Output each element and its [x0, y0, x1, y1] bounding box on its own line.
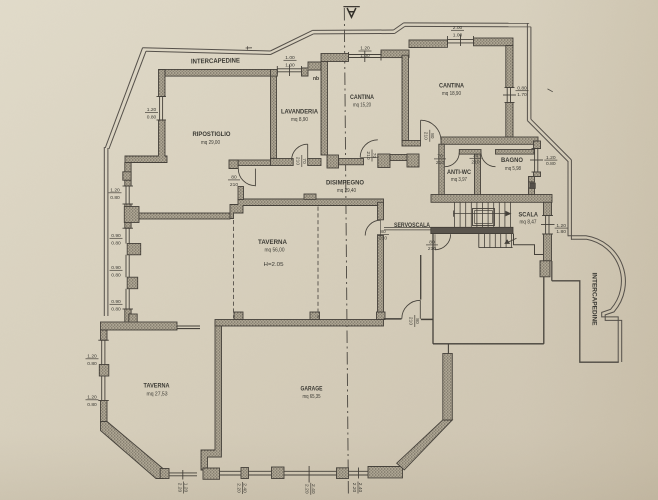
svg-text:mq 8,47: mq 8,47 [520, 220, 537, 226]
svg-text:CANTINA: CANTINA [350, 94, 374, 101]
svg-text:210: 210 [423, 132, 429, 140]
svg-text:ANTI-WC: ANTI-WC [447, 169, 471, 176]
svg-text:BAGNO: BAGNO [501, 157, 523, 164]
svg-text:1.70: 1.70 [517, 92, 527, 98]
svg-text:mq 29,00: mq 29,00 [201, 140, 220, 146]
svg-text:CANTINA: CANTINA [439, 83, 464, 90]
svg-text:DISIMPEGNO: DISIMPEGNO [326, 180, 364, 187]
svg-text:0.80: 0.80 [87, 361, 97, 367]
svg-text:mq 3,97: mq 3,97 [451, 177, 467, 183]
svg-text:1.00: 1.00 [285, 62, 295, 68]
svg-text:mq 27,53: mq 27,53 [147, 392, 168, 398]
svg-text:210: 210 [471, 159, 479, 165]
svg-text:1.00: 1.00 [453, 32, 463, 38]
svg-text:mq 56,00: mq 56,00 [265, 248, 285, 254]
svg-text:210: 210 [365, 151, 371, 159]
svg-text:mq 15,20: mq 15,20 [353, 103, 371, 109]
svg-text:0.80: 0.80 [147, 115, 157, 121]
svg-text:0.80: 0.80 [110, 195, 120, 201]
svg-text:0.80: 0.80 [111, 240, 121, 246]
svg-text:LAVANDERIA: LAVANDERIA [281, 109, 318, 116]
svg-text:SERVOSCALA: SERVOSCALA [394, 222, 430, 229]
svg-text:2.20: 2.20 [351, 483, 357, 493]
svg-text:210: 210 [436, 160, 444, 166]
svg-text:GARAGE: GARAGE [301, 386, 323, 393]
svg-text:210: 210 [379, 236, 387, 242]
svg-text:210: 210 [295, 157, 301, 165]
svg-text:TAVERNA: TAVERNA [258, 239, 287, 246]
svg-text:nb: nb [313, 76, 319, 82]
svg-text:2.20: 2.20 [176, 483, 182, 493]
svg-text:mq 65,35: mq 65,35 [303, 394, 321, 400]
svg-text:RIPOSTIGLIO: RIPOSTIGLIO [193, 131, 231, 138]
svg-text:INTERCAPEDINE: INTERCAPEDINE [591, 273, 598, 326]
svg-text:1.80: 1.80 [556, 229, 566, 235]
svg-text:SCALA: SCALA [519, 212, 539, 219]
svg-text:2.20: 2.20 [304, 484, 310, 494]
svg-text:TAVERNA: TAVERNA [144, 383, 170, 390]
svg-text:mq 5,98: mq 5,98 [505, 166, 521, 172]
svg-text:0.80: 0.80 [111, 272, 121, 278]
svg-text:210: 210 [428, 246, 436, 252]
svg-text:1.00: 1.00 [360, 53, 370, 59]
svg-text:0.80: 0.80 [546, 161, 556, 167]
svg-text:0.80: 0.80 [87, 402, 97, 408]
svg-text:2.20: 2.20 [235, 483, 241, 493]
svg-text:mq 18,90: mq 18,90 [442, 91, 461, 97]
svg-text:INTERCAPEDINE: INTERCAPEDINE [191, 57, 241, 65]
svg-text:210: 210 [230, 182, 238, 188]
svg-text:0.80: 0.80 [111, 306, 121, 312]
svg-text:H=2.05: H=2.05 [264, 262, 284, 268]
svg-text:210: 210 [408, 317, 414, 325]
svg-text:mq 29,40: mq 29,40 [337, 188, 356, 194]
svg-text:mq 8,90: mq 8,90 [291, 117, 308, 123]
